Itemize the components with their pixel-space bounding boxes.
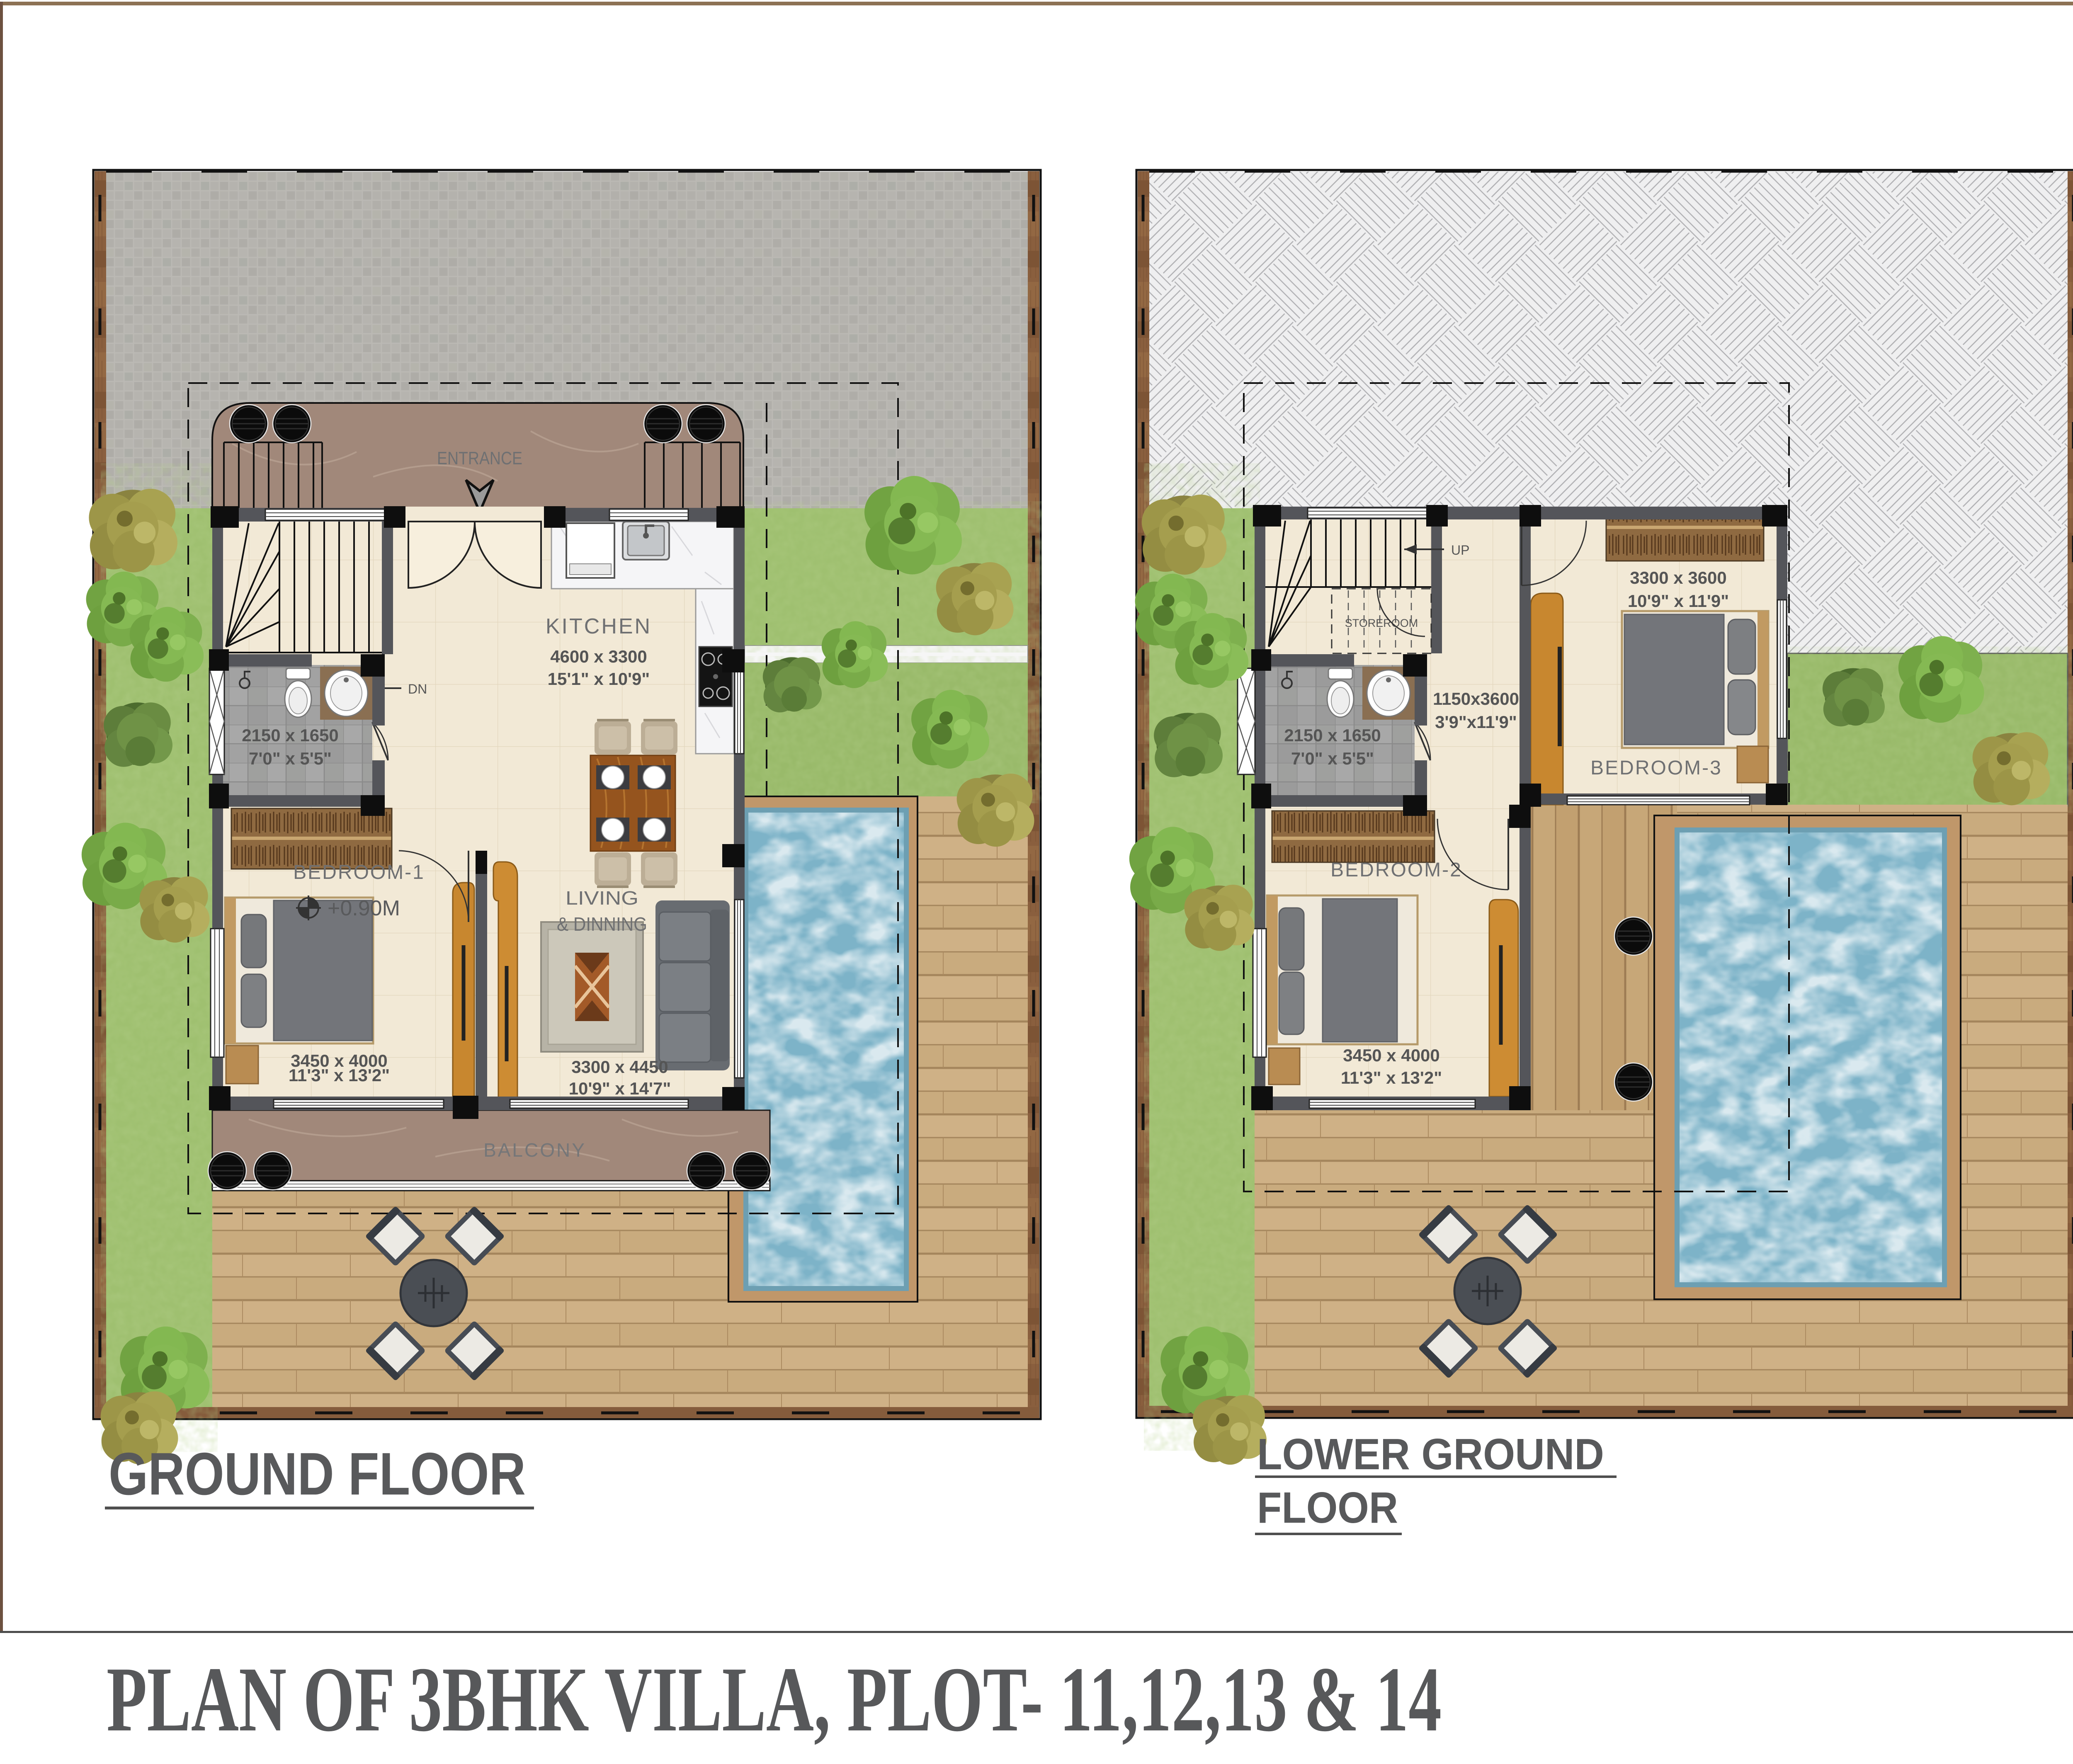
svg-text:DN: DN — [408, 682, 427, 696]
svg-text:BEDROOM-2: BEDROOM-2 — [1330, 859, 1462, 881]
svg-text:PLAN OF 3BHK VILLA, PLOT- 11,1: PLAN OF 3BHK VILLA, PLOT- 11,12,13 & 14 — [107, 1648, 1442, 1751]
svg-text:+0.90M: +0.90M — [328, 896, 400, 920]
svg-text:3'9"x11'9": 3'9"x11'9" — [1435, 712, 1517, 732]
svg-text:& DINNING: & DINNING — [557, 913, 647, 935]
svg-text:10'9" x 11'9": 10'9" x 11'9" — [1628, 591, 1729, 611]
svg-text:1150x3600: 1150x3600 — [1433, 689, 1519, 709]
svg-text:BALCONY: BALCONY — [483, 1139, 586, 1161]
svg-text:BEDROOM-3: BEDROOM-3 — [1590, 757, 1722, 779]
svg-text:2150 x 1650: 2150 x 1650 — [1284, 725, 1381, 745]
svg-text:2150 x 1650: 2150 x 1650 — [242, 725, 339, 745]
svg-text:7'0" x 5'5": 7'0" x 5'5" — [249, 749, 332, 768]
svg-text:11'3" x 13'2": 11'3" x 13'2" — [289, 1065, 390, 1085]
svg-text:FLOOR: FLOOR — [1257, 1483, 1398, 1532]
svg-text:GROUND FLOOR: GROUND FLOOR — [109, 1440, 526, 1507]
svg-text:10'9" x 14'7": 10'9" x 14'7" — [569, 1079, 671, 1098]
svg-text:ENTRANCE: ENTRANCE — [437, 448, 522, 468]
svg-text:LIVING: LIVING — [566, 887, 638, 909]
svg-text:STOREROOM: STOREROOM — [1345, 617, 1418, 629]
svg-text:LOWER GROUND: LOWER GROUND — [1257, 1430, 1604, 1479]
svg-text:3300 x 3600: 3300 x 3600 — [1630, 568, 1727, 587]
svg-text:3450 x 4000: 3450 x 4000 — [1343, 1046, 1440, 1065]
svg-text:UP: UP — [1451, 543, 1469, 558]
svg-text:KITCHEN: KITCHEN — [546, 614, 652, 638]
svg-text:15'1" x 10'9": 15'1" x 10'9" — [548, 669, 650, 689]
svg-text:11'3" x 13'2": 11'3" x 13'2" — [1341, 1068, 1442, 1087]
svg-text:4600 x 3300: 4600 x 3300 — [550, 647, 647, 666]
svg-text:7'0" x 5'5": 7'0" x 5'5" — [1291, 749, 1374, 768]
svg-text:3300 x 4450: 3300 x 4450 — [571, 1057, 668, 1077]
svg-text:BEDROOM-1: BEDROOM-1 — [293, 861, 425, 883]
